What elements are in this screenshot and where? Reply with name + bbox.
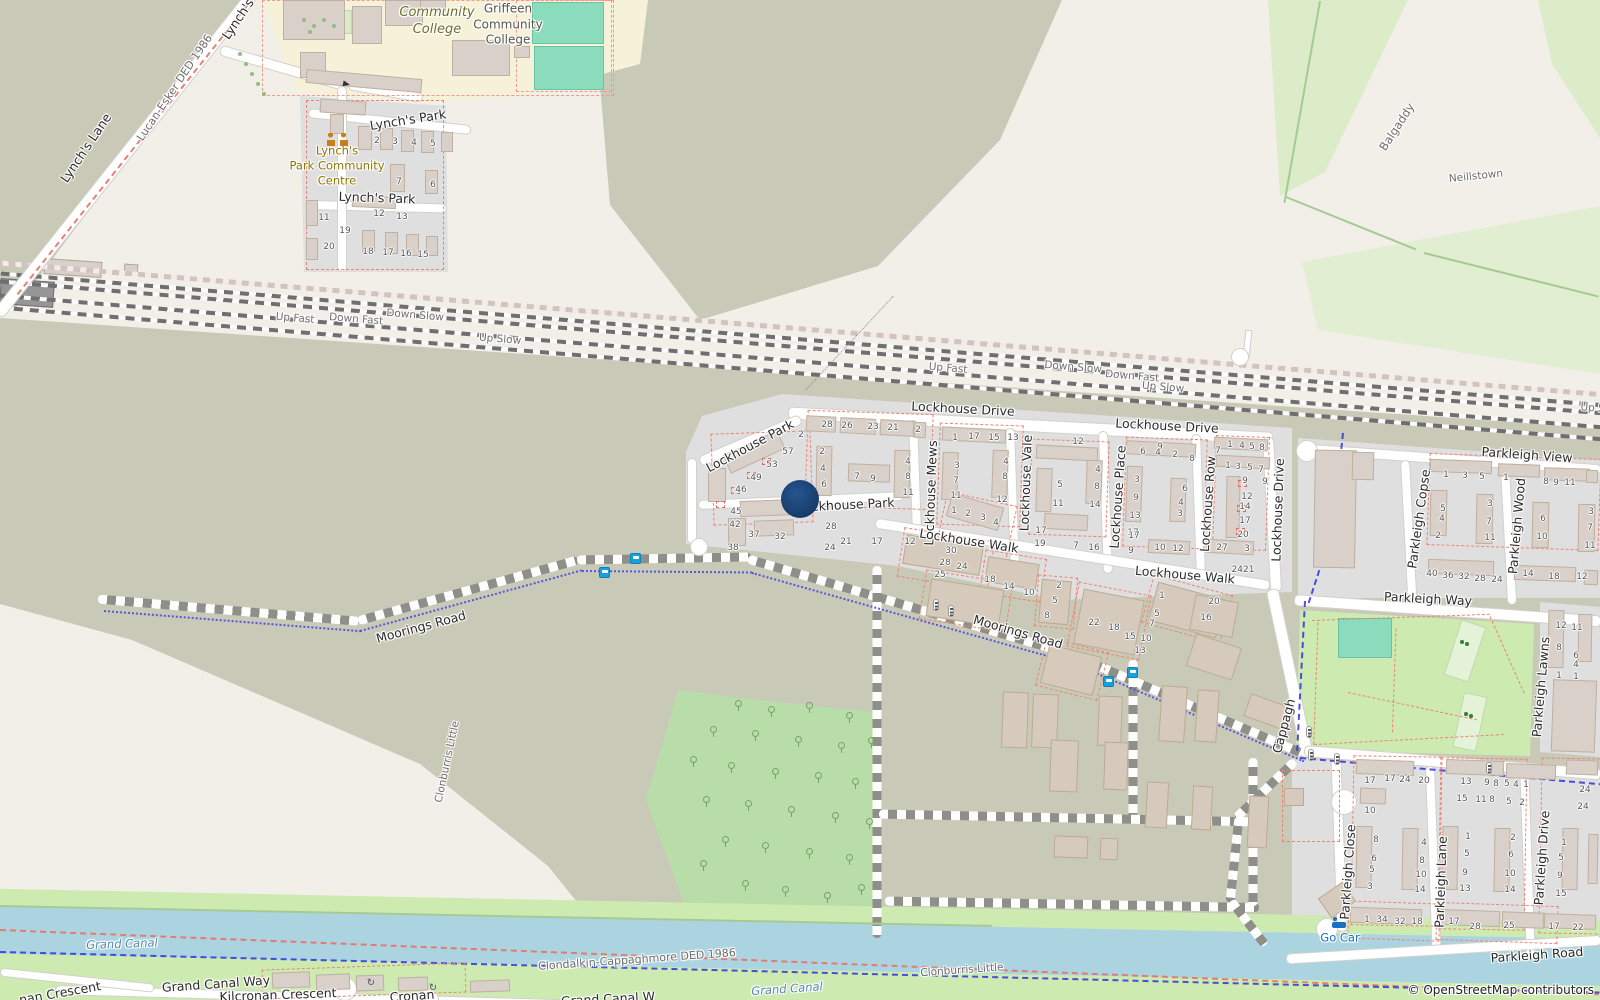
house-number: 4 [1573,660,1579,670]
tree-icon [806,702,813,709]
location-marker[interactable] [781,480,819,518]
tree-icon [866,818,873,825]
house-number: 2 [798,430,804,440]
house-number: 15 [1555,889,1566,899]
house-number: 9 [1262,477,1268,487]
house-number: 18 [1108,623,1119,633]
house-number: 25 [934,570,945,580]
house-number: 14 [1522,569,1533,579]
shrub-dot-icon [244,62,248,66]
house-number: 7 [1258,465,1264,475]
building-under-construction [1284,788,1304,806]
house-number: 6 [1508,850,1514,860]
house-number: 18 [1411,917,1422,927]
poi-label: Community College [399,5,474,39]
entrance-marker-icon [716,501,725,508]
tree-icon [728,762,735,769]
shrub-dot-icon [308,30,312,34]
house-number: 9 [1553,478,1559,488]
house-number: 8 [1002,472,1008,482]
house-number: 24 [956,562,967,572]
building [1586,470,1598,483]
house-number: 2 [1056,581,1062,591]
shrub-dot-icon [322,18,326,22]
house-number: 4 [1513,780,1519,790]
house-number: 3 [1244,544,1250,554]
house-number: 1 [1561,838,1567,848]
house-number: 40 [1426,569,1437,579]
building [1506,763,1556,780]
house-number: 7 [854,472,860,482]
house-number: 21 [887,423,898,433]
house-number: 3 [1588,507,1594,517]
house-number: 9 [1462,868,1468,878]
house-number: 4 [1439,514,1445,524]
tree-icon [858,884,865,891]
house-number: 11 [902,488,913,498]
building [1360,788,1387,805]
tree-icon [788,806,795,813]
traffic-signal-icon [933,599,939,611]
house-number: 10 [1536,532,1547,542]
building [1446,759,1504,776]
tree-icon [703,796,710,803]
house-number: 6 [1540,514,1546,524]
house-number: 8 [1044,611,1050,621]
playground-icon [1460,640,1464,644]
house-number: 10 [1364,806,1375,816]
house-number: 17 [1239,516,1250,526]
community-centre-icon [326,133,348,146]
poi-label: Lynch's Park Community Centre [289,144,384,189]
house-number: 5 [1247,463,1253,473]
building-under-construction [1001,692,1029,749]
house-number: 45 [730,507,741,517]
house-number: 3 [1177,509,1183,519]
house-number: 3 [1235,462,1241,472]
building [1352,452,1374,480]
building-under-construction [1097,696,1123,747]
house-number: 5 [1479,472,1485,482]
house-number: 34 [1376,915,1387,925]
house-number: 3 [980,513,986,523]
house-number: 17 [1128,531,1139,541]
house-number: 10 [1415,870,1426,880]
house-number: 12 [904,537,915,547]
poi-label: Griffeen Community College [473,2,542,49]
house-number: 2 [1519,798,1525,808]
water-label: Grand Canal [86,936,158,951]
house-number: 14 [1414,885,1425,895]
house-number: 1 [1465,832,1471,842]
house-number: 11 [1484,533,1495,543]
house-number: 8 [1259,443,1265,453]
house-number: 49 [750,473,761,483]
house-number: 7 [1149,619,1155,629]
house-number: 4 [1095,465,1101,475]
bus-stop-icon [1103,676,1114,687]
house-number: 1 [1364,915,1370,925]
building [352,6,382,44]
building [1578,614,1593,662]
house-number: 4 [1421,838,1427,848]
house-number: 13 [1129,511,1140,521]
house-number: 53 [766,460,777,470]
house-number: 8 [1543,477,1549,487]
house-number: 8 [1493,779,1499,789]
house-number: 7 [1215,446,1221,456]
house-number: 10 [1140,634,1151,644]
street-label: Parkleigh Lane [1433,836,1450,928]
house-number: 7 [1486,517,1492,527]
poi-label: Go Car [1320,931,1359,946]
house-number: 5 [1506,797,1512,807]
house-number: 5 [1057,480,1063,490]
street-label: Kilcronan Crescent [219,986,337,1000]
road-under-construction [1129,660,1138,820]
building-under-construction [1049,740,1079,793]
building [306,200,318,226]
house-number: 5 [1558,853,1564,863]
house-number: 9 [1557,871,1563,881]
oneway-arrow-icon [342,80,350,87]
house-number: 14 [1504,885,1515,895]
house-number: 11 [1571,623,1582,633]
house-number: 7 [1587,523,1593,533]
tree-icon [815,772,822,779]
shrub-dot-icon [256,82,260,86]
tree-icon [722,836,729,843]
playground-icon [1464,712,1468,716]
house-number: 5 [1052,596,1058,606]
car-sharing-icon [1332,917,1346,928]
house-number: 12 [1072,437,1083,447]
house-number: 17 [1548,922,1559,932]
house-number: 25 [1503,921,1514,931]
building [1493,828,1510,892]
house-number: 4 [1003,457,1009,467]
house-number: 13 [1459,884,1470,894]
tree-icon [782,886,789,893]
shrub-dot-icon [238,52,242,56]
house-number: 18 [362,247,373,257]
house-number: 5 [1369,865,1375,875]
house-number: 30 [945,546,956,556]
house-number: 11 [1475,795,1486,805]
house-number: 2 [1172,450,1178,460]
house-number: 24 [824,543,835,553]
house-number: 23 [867,422,878,432]
house-number: 24 [1399,775,1410,785]
house-number: 8 [1094,482,1100,492]
house-number: 8 [1419,856,1425,866]
tree-icon [690,756,697,763]
building [330,114,344,134]
tree-icon [700,860,707,867]
building-under-construction [1054,835,1089,858]
house-number: 17 [1035,526,1046,536]
house-number: 10 [1504,869,1515,879]
house-number: 13 [396,212,407,222]
house-number: 28 [821,420,832,430]
house-number: 1 [1503,473,1509,483]
bus-stop-icon [1127,667,1138,678]
house-number: 28 [1474,574,1485,584]
house-number: 13 [1007,433,1018,443]
house-number: 1 [1573,672,1579,682]
building [1588,834,1599,884]
house-number: 24 [1491,575,1502,585]
building [470,979,510,992]
road-under-construction [873,566,882,938]
house-number: 14 [1089,500,1100,510]
house-number: 14 [1239,502,1250,512]
house-number: 15 [1456,794,1467,804]
house-number: 7 [953,476,959,486]
house-number: 2 [915,425,921,435]
house-number: 13 [1134,646,1145,656]
house-number: 8 [1373,835,1379,845]
place-label: Balgaddy [1377,101,1417,153]
house-number: 32 [1394,917,1405,927]
map-rect [1338,618,1392,658]
house-number: 6 [821,480,827,490]
house-number: 4 [1155,448,1161,458]
house-number: 20 [1208,597,1219,607]
house-number: 28 [1469,922,1480,932]
house-number: 1 [1225,461,1231,471]
tree-icon [832,812,839,819]
house-number: 17 [1364,776,1375,786]
shrub-dot-icon [302,18,306,22]
house-number: 42 [729,520,740,530]
house-number: 2 [965,509,971,519]
house-number: 32 [1458,572,1469,582]
house-number: 24 [1579,785,1590,795]
road-turning-circle [690,538,708,556]
tree-icon [772,768,779,775]
house-number: 3 [1462,471,1468,481]
house-number: 9 [1484,778,1490,788]
house-number: 16 [1200,613,1211,623]
house-number: 28 [939,558,950,568]
house-number: 7 [396,177,402,187]
building [1035,468,1053,513]
house-number: 1 [952,433,958,443]
house-number: 1 [951,506,957,516]
house-number: 4 [1239,441,1245,451]
house-number: 9 [870,474,876,484]
house-number: 26 [841,421,852,431]
house-number: 7 [1073,541,1079,551]
house-number: 6 [1140,447,1146,457]
street-label: Lynch's Park [338,190,415,206]
building [1044,513,1089,531]
tree-icon [795,736,802,743]
house-number: 6 [430,180,436,190]
house-number: 21 [840,537,851,547]
tree-icon [745,800,752,807]
house-number: 17 [1384,774,1395,784]
house-number: 15 [1124,632,1135,642]
building-under-construction [1247,796,1270,849]
traffic-signal-icon [1334,753,1340,765]
house-number: 46 [735,485,746,495]
shrub-dot-icon [312,24,316,28]
house-number: 57 [782,447,793,457]
house-number: 1 [1443,470,1449,480]
tree-icon [846,712,853,719]
house-number: 18 [1548,572,1559,582]
house-number: 8 [1556,643,1562,653]
house-number: 16 [400,249,411,259]
tree-icon [735,700,742,707]
bus-stop-icon [599,567,610,578]
house-number: 38 [727,543,738,553]
house-number: 5 [1504,779,1510,789]
house-number: 18 [984,575,995,585]
house-number: 12 [1555,621,1566,631]
tree-icon [838,742,845,749]
house-number: 8 [1489,795,1495,805]
house-number: 17 [871,537,882,547]
house-number: 10 [1154,543,1165,553]
tree-icon [762,842,769,849]
tree-icon [710,726,717,733]
bus-stop-icon [630,553,641,564]
house-number: 15 [988,433,999,443]
house-number: 15 [417,250,428,260]
house-number: 3 [1134,475,1140,485]
house-number: 4 [993,518,999,528]
tree-icon [824,892,831,899]
house-number: 11 [1564,478,1575,488]
building-under-construction [1158,685,1188,743]
building [1355,826,1372,888]
shrub-dot-icon [262,92,266,96]
house-number: 32 [774,532,785,542]
house-number: 1 [1159,591,1165,601]
house-number: 4 [411,138,417,148]
house-number: 37 [748,530,759,540]
house-number: 17 [382,248,393,258]
tree-icon [806,848,813,855]
building [1313,450,1357,569]
house-number: 36 [1442,571,1453,581]
tree-icon [846,854,853,861]
house-number: 1 [1523,780,1529,790]
house-number: 8 [905,472,911,482]
map-canvas[interactable]: ↻↻Lynch's ParkLynch's ParkLynch's LaneLy… [0,0,1600,1000]
house-number: 5 [1154,609,1160,619]
house-number: 27 [1216,543,1227,553]
house-number: 12 [1172,544,1183,554]
shrub-dot-icon [332,24,336,28]
house-number: 3 [1367,882,1373,892]
house-number: 4 [820,464,826,474]
house-number: 6 [1182,484,1188,494]
building-under-construction [1194,689,1220,742]
place-label: Neillstown [1448,168,1503,185]
house-number: 13 [1460,777,1471,787]
house-number: 3 [1487,499,1493,509]
road-turning-circle [1231,348,1249,366]
mini-roundabout-icon: ↻ [429,983,437,994]
house-number: 3 [954,461,960,471]
house-number: 20 [1418,776,1429,786]
house-number: 22 [1572,923,1583,933]
building-under-construction [1103,742,1129,791]
building [441,132,453,152]
building [283,0,345,40]
traffic-signal-icon [1486,762,1492,774]
house-number: 11 [1584,541,1595,551]
house-number: 28 [825,522,836,532]
tree-icon [868,737,875,744]
house-number: 20 [1237,530,1248,540]
house-number: 5 [1464,849,1470,859]
road[interactable] [687,458,697,544]
parcel-outline [1282,770,1340,842]
house-number: 20 [323,242,334,252]
house-number: 2 [1435,531,1441,541]
house-number: 9 [1133,493,1139,503]
house-number: 1 [1556,671,1562,681]
traffic-signal-icon [1306,726,1312,738]
tree-icon [852,778,859,785]
house-number: 11 [318,213,329,223]
house-number: 12 [996,495,1007,505]
traffic-signal-icon [948,605,954,617]
house-number: 5 [1249,442,1255,452]
building [1401,828,1418,890]
hedge-line [1286,196,1417,250]
house-number: 11 [950,491,961,501]
house-number: 12 [1576,572,1587,582]
house-number: 10 [1023,588,1034,598]
rail-track-label: Up Sl [1580,402,1600,416]
house-number: 22 [1088,618,1099,628]
house-number: 14 [1003,582,1014,592]
house-number: 4 [1178,498,1184,508]
traffic-signal-icon [1308,749,1314,761]
house-number: 5 [430,139,436,149]
house-number: 6 [1371,854,1377,864]
map-attribution[interactable]: © OpenStreetMap contributors [1408,983,1594,997]
tree-icon [752,730,759,737]
house-number: 24 [1577,802,1588,812]
house-number: 9 [1242,476,1248,486]
house-number: 12 [1241,492,1252,502]
house-number: 11 [1052,499,1063,509]
house-number: 17 [968,432,979,442]
house-number: 2 [1510,833,1516,843]
house-number: 5 [1440,504,1446,514]
building-under-construction [1100,838,1119,861]
house-number: 12 [373,209,384,219]
building [1551,679,1597,752]
building-under-construction [1191,786,1213,831]
house-number: 16 [1088,543,1099,553]
house-number: 9 [1128,546,1134,556]
tree-icon [742,880,749,887]
house-number: 4 [905,457,911,467]
house-number: 19 [339,226,350,236]
house-number: 1 [1227,440,1233,450]
house-number: 8 [1189,454,1195,464]
building-under-construction [1145,781,1169,828]
mini-roundabout-icon: ↻ [367,978,375,989]
